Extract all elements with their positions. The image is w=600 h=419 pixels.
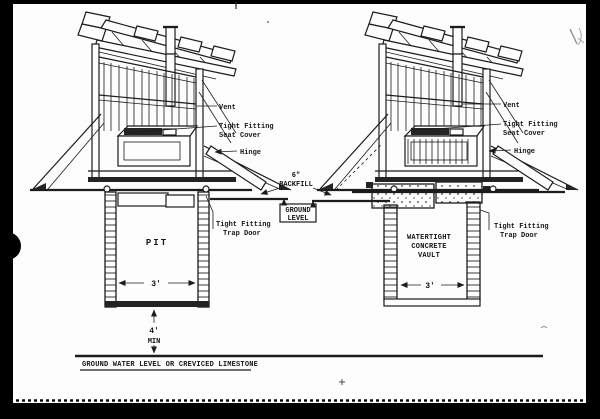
vault-label-line2: CONCRETE [411, 243, 446, 251]
vault-cover-slab [372, 184, 434, 208]
vault-label-line3: VAULT [418, 252, 440, 260]
vault-label-line1: WATERTIGHT [407, 234, 451, 242]
trap-door-label-line1: Tight Fitting [216, 221, 271, 229]
depth-dim-line1: 4' [149, 327, 159, 336]
trap-door-under-floor [118, 193, 168, 206]
hinge-label: Hinge [514, 148, 535, 156]
vault-left-wall [384, 205, 397, 300]
slab-corner-block [366, 182, 373, 188]
scanned-diagram-page: Vent Tight Fitting Seat Cover Hinge Tigh… [0, 0, 600, 419]
vent-label: Vent [503, 102, 520, 110]
pit-right-wall [198, 192, 209, 307]
ground-water-label: GROUND WATER LEVEL OR CREVICED LIMESTONE [82, 361, 258, 369]
backfill-label-line2: BACKFILL [279, 181, 313, 189]
backfill-label-line1: 6" [292, 172, 300, 180]
seat-cover-label-line1: Tight Fitting [219, 123, 274, 131]
pit-label: PIT [146, 238, 168, 248]
privy-diagram-svg: Vent Tight Fitting Seat Cover Hinge Tigh… [0, 0, 600, 419]
ground-level-label-line1: GROUND [285, 207, 310, 215]
seat-cover-label-line1: Tight Fitting [503, 121, 558, 129]
seat-cover-label-line2: Seat Cover [503, 130, 545, 138]
ground-level-label-line2: LEVEL [287, 215, 308, 223]
hinge-label: Hinge [240, 149, 261, 157]
trap-door-label-line2: Trap Door [223, 230, 261, 238]
vault-right-wall [467, 202, 480, 300]
trap-door-label-line2: Trap Door [500, 232, 538, 240]
trap-door-label-line1: Tight Fitting [494, 223, 549, 231]
pit-left-wall [105, 192, 116, 307]
trap-door-under-floor [166, 195, 194, 207]
vent-label: Vent [219, 104, 236, 112]
scan-speck [267, 21, 269, 23]
depth-dim-line2: MIN [148, 338, 161, 346]
vault-width-dim: 3' [425, 282, 435, 291]
seat-cover-label-line2: Seat Cover [219, 132, 261, 140]
vault-bottom-slab [384, 299, 480, 306]
pit-bottom [105, 301, 209, 307]
pit-width-dim: 3' [151, 280, 161, 289]
